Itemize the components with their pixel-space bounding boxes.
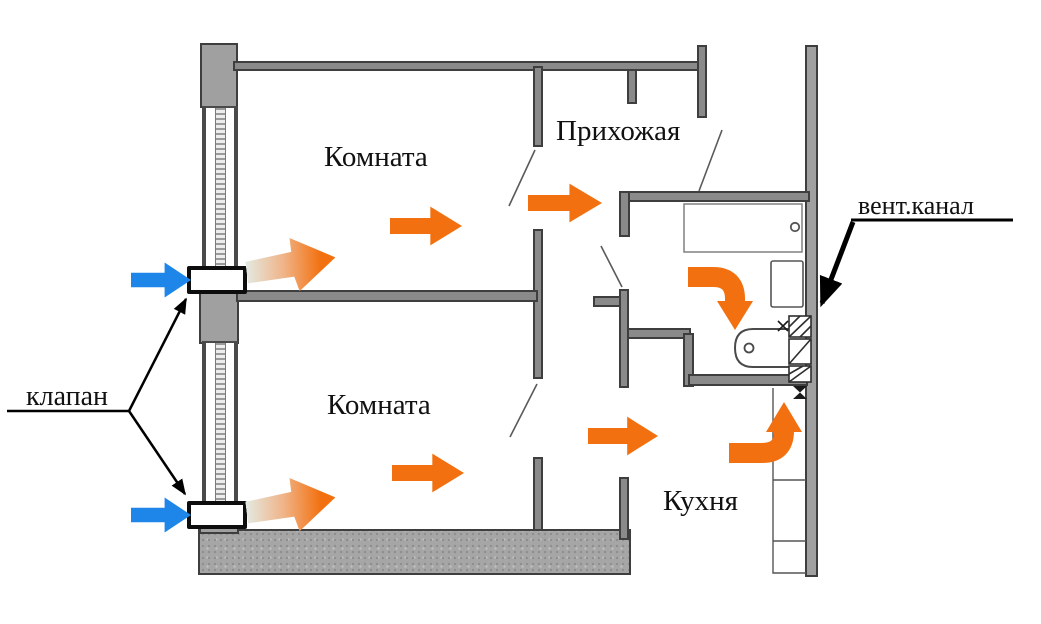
door-swing-bathroom xyxy=(601,246,622,287)
kitchen-label: Кухня xyxy=(663,487,738,516)
hallway-label: Прихожая xyxy=(556,117,680,146)
outer-wall-pier-top-left xyxy=(200,43,238,108)
flow-arrow-room-top-icon xyxy=(390,205,462,247)
valve-leader-bottom xyxy=(129,411,185,494)
sink xyxy=(771,261,803,307)
supply-arrow-bottom-icon xyxy=(243,473,339,538)
wall-stub-kitchen-left xyxy=(593,296,621,307)
wall-kitchen-lower xyxy=(619,477,629,540)
closet-outline xyxy=(684,204,802,252)
air-valve-top xyxy=(187,266,247,294)
valve-leader-top xyxy=(129,299,186,411)
wall-stub-hallway xyxy=(627,69,637,104)
flow-arrow-room-bottom-icon xyxy=(392,452,464,494)
wall-bath-bottom xyxy=(688,374,808,386)
tap-mark-icon xyxy=(778,321,788,331)
door-swing-room-bottom xyxy=(510,384,537,437)
wall-room2-lower xyxy=(533,457,543,531)
vent-channel-label: вент.канал xyxy=(858,193,974,219)
outer-wall-bottom xyxy=(198,529,631,575)
flow-arrow-kitchen-entry-icon xyxy=(588,415,658,457)
door-swing-hallway xyxy=(699,130,722,191)
vent-leader xyxy=(822,222,853,303)
wall-stub-bath-left xyxy=(627,328,691,339)
window-bottom xyxy=(202,341,238,504)
window-top xyxy=(202,106,238,269)
closet-knob-icon xyxy=(791,223,799,231)
floor-plan-canvas: Комната Прихожая Комната Кухня клапан ве… xyxy=(0,0,1041,624)
window-glazing-icon xyxy=(215,108,226,267)
flow-arrow-into-bath-head xyxy=(717,301,753,330)
kitchen-counter xyxy=(773,388,806,573)
curved-flow-arrows xyxy=(688,277,802,453)
outer-wall-right xyxy=(805,45,818,577)
wall-room1-upper xyxy=(533,66,543,147)
flow-arrow-into-bath-icon xyxy=(688,277,735,303)
valve-label: клапан xyxy=(26,383,108,411)
supply-arrow-top-icon xyxy=(243,233,339,298)
window-glazing-icon xyxy=(215,343,226,502)
wall-room1-middle xyxy=(533,229,543,379)
wall-hall-top-corner xyxy=(697,45,707,118)
intake-arrow-bottom-icon xyxy=(131,496,191,534)
callout-leaders xyxy=(7,220,1013,494)
bathtub-drain-icon xyxy=(745,344,754,353)
air-valve-bottom xyxy=(187,501,247,529)
bathtub xyxy=(735,329,806,367)
room-bottom-label: Комната xyxy=(327,391,431,420)
wall-bath-doorpost xyxy=(619,191,630,237)
intake-arrow-top-icon xyxy=(131,261,191,299)
wall-between-rooms xyxy=(236,290,538,302)
flow-arrow-hallway-icon xyxy=(528,182,602,224)
room-top-label: Комната xyxy=(324,143,428,172)
outer-wall-pier-mid-left xyxy=(199,292,239,344)
flow-arrow-kitchen-up-head xyxy=(766,402,802,432)
wall-bath-top xyxy=(619,191,810,202)
flow-arrow-kitchen-up-icon xyxy=(729,429,784,453)
